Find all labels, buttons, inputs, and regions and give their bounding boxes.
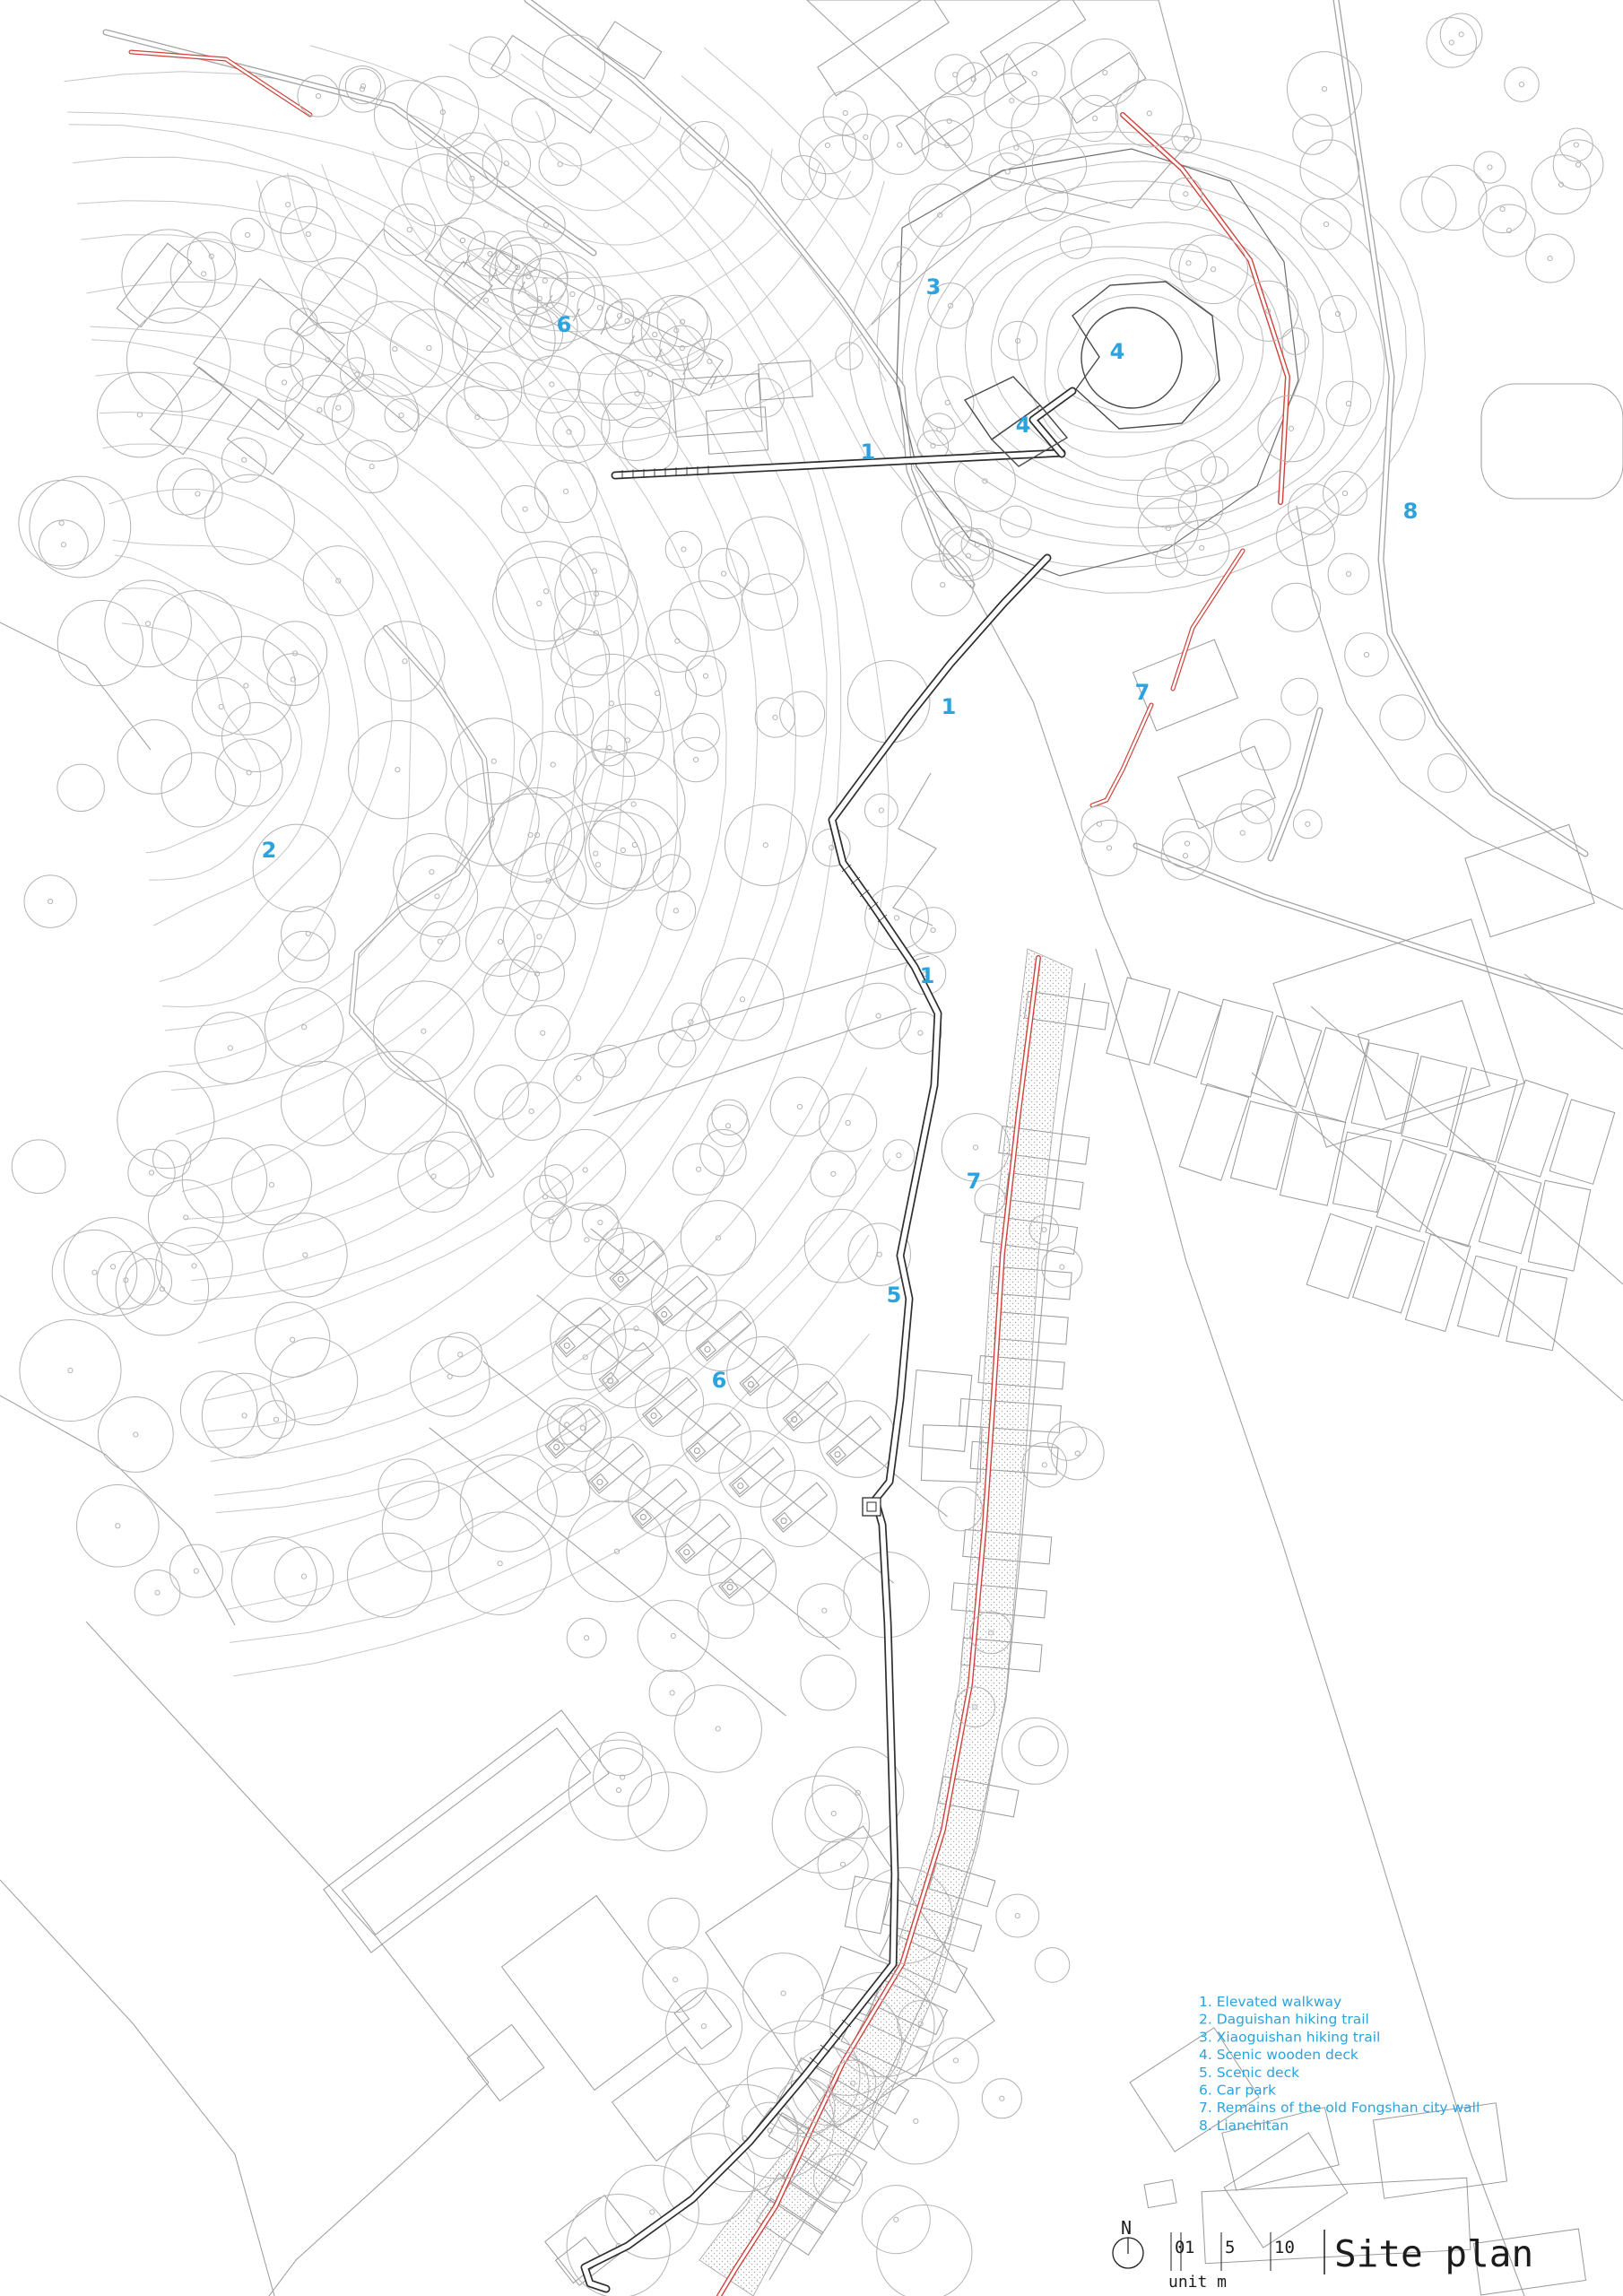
tree-center (498, 1561, 502, 1566)
tree-center (1306, 822, 1310, 826)
tree-center (1185, 841, 1189, 846)
parking-bay-dot (727, 1585, 733, 1590)
tree (520, 732, 586, 798)
tree-center (781, 1991, 785, 1996)
tree (1213, 804, 1271, 862)
tree-center (1364, 652, 1368, 657)
tree (77, 1484, 160, 1567)
tree (745, 378, 784, 417)
tree (797, 1584, 851, 1638)
contour-line (877, 143, 1406, 568)
tree (1324, 472, 1367, 516)
tree (231, 1145, 311, 1225)
tree-center (650, 2210, 655, 2214)
building (673, 374, 762, 438)
tree-center (301, 1574, 306, 1578)
tree (536, 389, 610, 463)
parking-bay-dot (738, 1483, 743, 1489)
plan-label-6: 6 (557, 312, 572, 337)
tree-center (543, 222, 548, 227)
tree-center (1186, 261, 1191, 265)
plan-label-1: 1 (861, 439, 876, 465)
tree-center (551, 762, 555, 767)
tree-center (550, 382, 554, 387)
building (909, 1370, 972, 1452)
road-layer (0, 0, 1623, 2296)
tree-center (1000, 2096, 1004, 2100)
tree-center (953, 73, 958, 77)
tree (19, 480, 105, 566)
north-label: N (1121, 2217, 1132, 2239)
building (1224, 2133, 1348, 2248)
tree (531, 1201, 571, 1241)
tree-center (286, 203, 291, 207)
tree (542, 35, 605, 98)
tree-center (621, 848, 625, 852)
scale-tick-label: 0 (1175, 2238, 1185, 2257)
tree (264, 1213, 348, 1298)
tree (804, 1209, 878, 1283)
tree (173, 469, 222, 518)
tree-center (403, 659, 407, 664)
tree-center (592, 569, 596, 573)
tree-center (1183, 854, 1187, 858)
tree (935, 55, 976, 95)
tree (195, 1013, 266, 1084)
tree-center (681, 547, 686, 552)
parking-bay-dot (597, 1480, 603, 1485)
tree (410, 1336, 490, 1416)
tree (1553, 140, 1603, 190)
xiaoguishan-trail (872, 208, 1110, 325)
contour-line (91, 340, 542, 1135)
tree-center (877, 1252, 881, 1257)
tree-center (773, 715, 777, 719)
tree (438, 1333, 482, 1377)
plaza-east-edge (1297, 506, 1472, 836)
tree (396, 856, 477, 936)
tree (524, 356, 581, 413)
tree (512, 99, 556, 143)
road-edge (1311, 1006, 1623, 1284)
tree-center (671, 1633, 675, 1638)
tree (1000, 506, 1031, 537)
tree-center (716, 1726, 720, 1731)
contour-line (902, 161, 1384, 546)
tree-center (460, 238, 464, 242)
tree (1072, 95, 1117, 141)
tree (1532, 155, 1591, 214)
parcel (1549, 1100, 1615, 1184)
tree-center (435, 894, 439, 899)
legend-item-6: 6. Car park (1199, 2083, 1276, 2099)
tree (614, 1306, 659, 1351)
tree (57, 764, 104, 811)
contour-line (122, 623, 261, 853)
building (597, 22, 662, 79)
tree-center (1500, 206, 1505, 211)
tree (873, 2078, 959, 2164)
tree (819, 1401, 895, 1477)
building (324, 1710, 609, 1952)
road-edge (574, 956, 929, 1060)
tree (524, 1176, 567, 1219)
legend-item-1: 1. Elevated walkway (1199, 1994, 1341, 2010)
legend-item-3: 3. Xiaoguishan hiking trail (1199, 2029, 1380, 2045)
scale-tick-label: 10 (1274, 2238, 1295, 2257)
tree (999, 131, 1033, 165)
tree (1293, 810, 1322, 839)
tree-center (543, 589, 548, 594)
tree-center (609, 701, 613, 706)
tree-center (407, 228, 412, 232)
tree (325, 394, 352, 422)
tree (555, 697, 593, 735)
tree (1081, 806, 1117, 842)
contour-line (81, 235, 625, 1247)
tree (551, 629, 610, 687)
tree-center (945, 400, 950, 404)
stair-path (893, 773, 936, 926)
tree-center (523, 507, 527, 511)
tree-center (894, 916, 898, 920)
tree-center (303, 1253, 308, 1257)
tree (651, 1265, 716, 1331)
tree (1240, 719, 1290, 770)
tree (1025, 178, 1068, 222)
contour-line (221, 1149, 872, 1552)
parcel (1231, 1101, 1297, 1190)
tree (1559, 128, 1593, 161)
tree-center (1548, 256, 1552, 260)
tree (643, 1947, 708, 2013)
legend-item-4: 4. Scenic wooden deck (1199, 2047, 1358, 2063)
parcel (1251, 1016, 1322, 1108)
tree-center (149, 1170, 153, 1175)
tree (302, 258, 378, 334)
tree-center (244, 683, 248, 688)
tree-center (918, 1031, 923, 1035)
tree-center (1166, 526, 1170, 530)
tree-center (1103, 70, 1107, 74)
tree-center (1449, 40, 1454, 45)
tree (1179, 235, 1248, 304)
tree-center (840, 1862, 845, 1866)
scenic-wooden-deck-circle (1081, 308, 1182, 408)
tree (466, 908, 535, 977)
tree (39, 520, 89, 570)
tree (862, 2186, 930, 2254)
tree-center (1574, 143, 1578, 147)
title-block: N 01510 Site plan unit m (1113, 2217, 1533, 2292)
tree-center (92, 1270, 97, 1274)
tree (1081, 820, 1137, 875)
tree-center (585, 1238, 589, 1242)
tree (1072, 39, 1139, 106)
tree-center (1575, 162, 1580, 167)
plan-label-8: 8 (1403, 499, 1419, 524)
tree (780, 691, 825, 736)
tree (347, 1533, 431, 1617)
tree (274, 1547, 334, 1606)
road-edge (0, 1396, 235, 1625)
tree (657, 297, 707, 347)
tree (602, 392, 670, 460)
tree-center (558, 162, 562, 167)
building (151, 367, 231, 455)
tree-center (1211, 267, 1216, 272)
tree (1422, 165, 1487, 230)
tree-center (61, 543, 65, 547)
tree-center (1200, 545, 1204, 550)
tree (1138, 498, 1198, 558)
tree-center (549, 1219, 553, 1223)
contour-line (118, 588, 302, 880)
tree-center (68, 1368, 73, 1372)
tree-center (670, 1691, 674, 1695)
tree (924, 413, 956, 446)
tree (1258, 396, 1324, 462)
tree (996, 1894, 1039, 1937)
tree (673, 737, 717, 781)
tree (653, 855, 690, 892)
tree-center (1346, 571, 1350, 576)
daguishan-trail (352, 628, 491, 1175)
tree-center (1005, 170, 1010, 174)
plan-label-6: 6 (712, 1368, 727, 1393)
contour-line (288, 173, 885, 404)
tree-center (722, 571, 726, 576)
tree-center (894, 2217, 898, 2222)
tree (820, 1094, 877, 1152)
contour-line (69, 125, 758, 1344)
road-edge (594, 1008, 916, 1116)
tree (877, 2205, 972, 2296)
contour-line (73, 157, 726, 1300)
parking-bay-dot (748, 1382, 753, 1387)
contour-line (65, 72, 828, 1431)
parking-bay-dot (554, 1444, 560, 1449)
tree (1300, 140, 1359, 199)
tree (727, 1336, 798, 1407)
building (706, 407, 768, 454)
tree-center (302, 1025, 307, 1030)
tree-center (1107, 846, 1111, 850)
tree (742, 574, 798, 631)
building (1374, 2103, 1507, 2198)
tree-center (355, 372, 360, 377)
tree-center (831, 1171, 836, 1176)
contour-line (100, 413, 468, 1066)
tree (629, 1465, 700, 1536)
tree-center (1346, 401, 1350, 405)
tree (883, 1140, 915, 1171)
wide-street-edge (1096, 949, 1524, 2296)
tree (490, 794, 572, 876)
building (467, 2024, 544, 2100)
tree (265, 987, 343, 1066)
tree (1401, 177, 1456, 232)
tree-center (653, 332, 657, 336)
tree (755, 698, 794, 737)
site-plan-sheet: 1112344566778 1. Elevated walkway2. Dagu… (0, 0, 1623, 2296)
north-arrow: N (1113, 2217, 1143, 2268)
tree (1345, 633, 1389, 677)
wall-remains (1092, 705, 1151, 805)
tree-center (725, 1124, 730, 1128)
plan-label-7: 7 (1135, 680, 1150, 705)
tree-center (438, 939, 442, 944)
scale-bar: 01510 (1171, 2232, 1295, 2271)
contour-line (233, 1334, 869, 1676)
tree-center (647, 371, 652, 376)
tree-center (763, 843, 768, 848)
tree (448, 1512, 551, 1615)
contour-line (109, 490, 393, 1007)
contour-line (77, 201, 677, 1281)
tree-center (155, 1590, 160, 1595)
road-edge (1524, 974, 1623, 1049)
tree (760, 1471, 837, 1547)
tree (665, 1500, 741, 1575)
tree (516, 1005, 570, 1060)
plan-label-4: 4 (1110, 339, 1125, 364)
deck-lift (863, 1498, 881, 1516)
tree (1301, 199, 1351, 249)
tree-center (427, 346, 431, 351)
tree (215, 739, 282, 806)
tree-center (825, 143, 829, 147)
parcel (1497, 1080, 1567, 1177)
tree (180, 1371, 256, 1448)
contour-line (916, 181, 1353, 528)
tree-center (694, 757, 699, 761)
building (228, 399, 304, 474)
tree (881, 247, 916, 282)
tree (1241, 790, 1275, 824)
tree-center (537, 935, 542, 939)
tree-center (879, 808, 883, 813)
tree (496, 542, 595, 641)
tree (503, 900, 575, 972)
tree (483, 960, 539, 1015)
parcel (1306, 1213, 1372, 1298)
contour-line (226, 1160, 890, 1610)
tree (674, 1685, 761, 1772)
tree (1174, 520, 1228, 575)
tree (255, 1302, 329, 1377)
tree (568, 1740, 669, 1840)
drawing-title: Site plan (1334, 2232, 1533, 2275)
scale-tick-label: 1 (1185, 2238, 1194, 2257)
building (818, 0, 949, 96)
tree (285, 376, 354, 445)
tree (474, 1065, 528, 1119)
tree (685, 656, 725, 696)
contour-line (91, 326, 578, 1191)
tree-center (483, 298, 488, 302)
tree-center (864, 135, 868, 139)
tree-center (48, 900, 53, 904)
tree-center (1042, 1228, 1046, 1232)
tree-center (458, 1352, 463, 1357)
tree-center (1342, 491, 1347, 495)
field-boundary (86, 1622, 489, 2083)
parcel (1107, 978, 1170, 1065)
tree (1202, 457, 1228, 483)
tree (502, 1083, 560, 1141)
tree-center (953, 2058, 958, 2063)
elevated-walkway-core (615, 453, 1062, 475)
tree (170, 240, 237, 307)
tree-center (430, 870, 434, 874)
tree-center (431, 1174, 436, 1178)
parking-bay-dot (640, 1515, 646, 1520)
tree (192, 678, 250, 736)
contour-line (535, 111, 661, 166)
plan-label-5: 5 (887, 1283, 902, 1308)
tree (698, 1582, 754, 1639)
tree-center (1042, 1463, 1046, 1467)
tree-center (846, 1120, 850, 1125)
tree (282, 907, 335, 961)
hill-park-fence (897, 149, 1298, 576)
tree-center (393, 347, 397, 352)
tree-center (595, 863, 600, 867)
tree-center (195, 491, 200, 496)
tree (1526, 234, 1575, 283)
parking-aisle (537, 1295, 894, 1583)
tree (933, 2038, 979, 2083)
tree (811, 1151, 856, 1196)
building (674, 1990, 732, 2048)
tree-center (577, 1076, 581, 1081)
parking-bay-dot (684, 1550, 690, 1555)
tree (298, 75, 339, 117)
parcel (1450, 1068, 1517, 1162)
tree (460, 1455, 557, 1552)
tree (910, 908, 956, 953)
tree (909, 184, 971, 246)
tree (1035, 1948, 1070, 1983)
parking-bay-dot (705, 1347, 710, 1352)
tree (126, 308, 230, 412)
road-lakeside (1336, 0, 1585, 854)
tree-center (242, 1413, 247, 1418)
road-top-left-core (106, 32, 594, 253)
contour-line (1045, 274, 1244, 432)
tree-center (202, 272, 206, 276)
site-plan-drawing: 1112344566778 1. Elevated walkway2. Dagu… (0, 0, 1623, 2296)
tree (20, 1319, 121, 1421)
tree-center (1289, 426, 1293, 430)
legend: 1. Elevated walkway2. Daguishan hiking t… (1199, 1994, 1480, 2134)
tree (615, 339, 685, 409)
tree (823, 91, 867, 135)
tree (700, 1129, 747, 1176)
parking-bay-dot (564, 1343, 569, 1348)
tree (12, 1140, 65, 1194)
tree-center (673, 909, 678, 913)
tree-center (594, 851, 598, 856)
tree (982, 2079, 1021, 2118)
tree-center (542, 278, 547, 283)
tree (24, 875, 76, 927)
building (502, 1896, 690, 2091)
road-hill-west (527, 0, 972, 585)
tree (870, 116, 929, 175)
tree-center (542, 1195, 547, 1199)
